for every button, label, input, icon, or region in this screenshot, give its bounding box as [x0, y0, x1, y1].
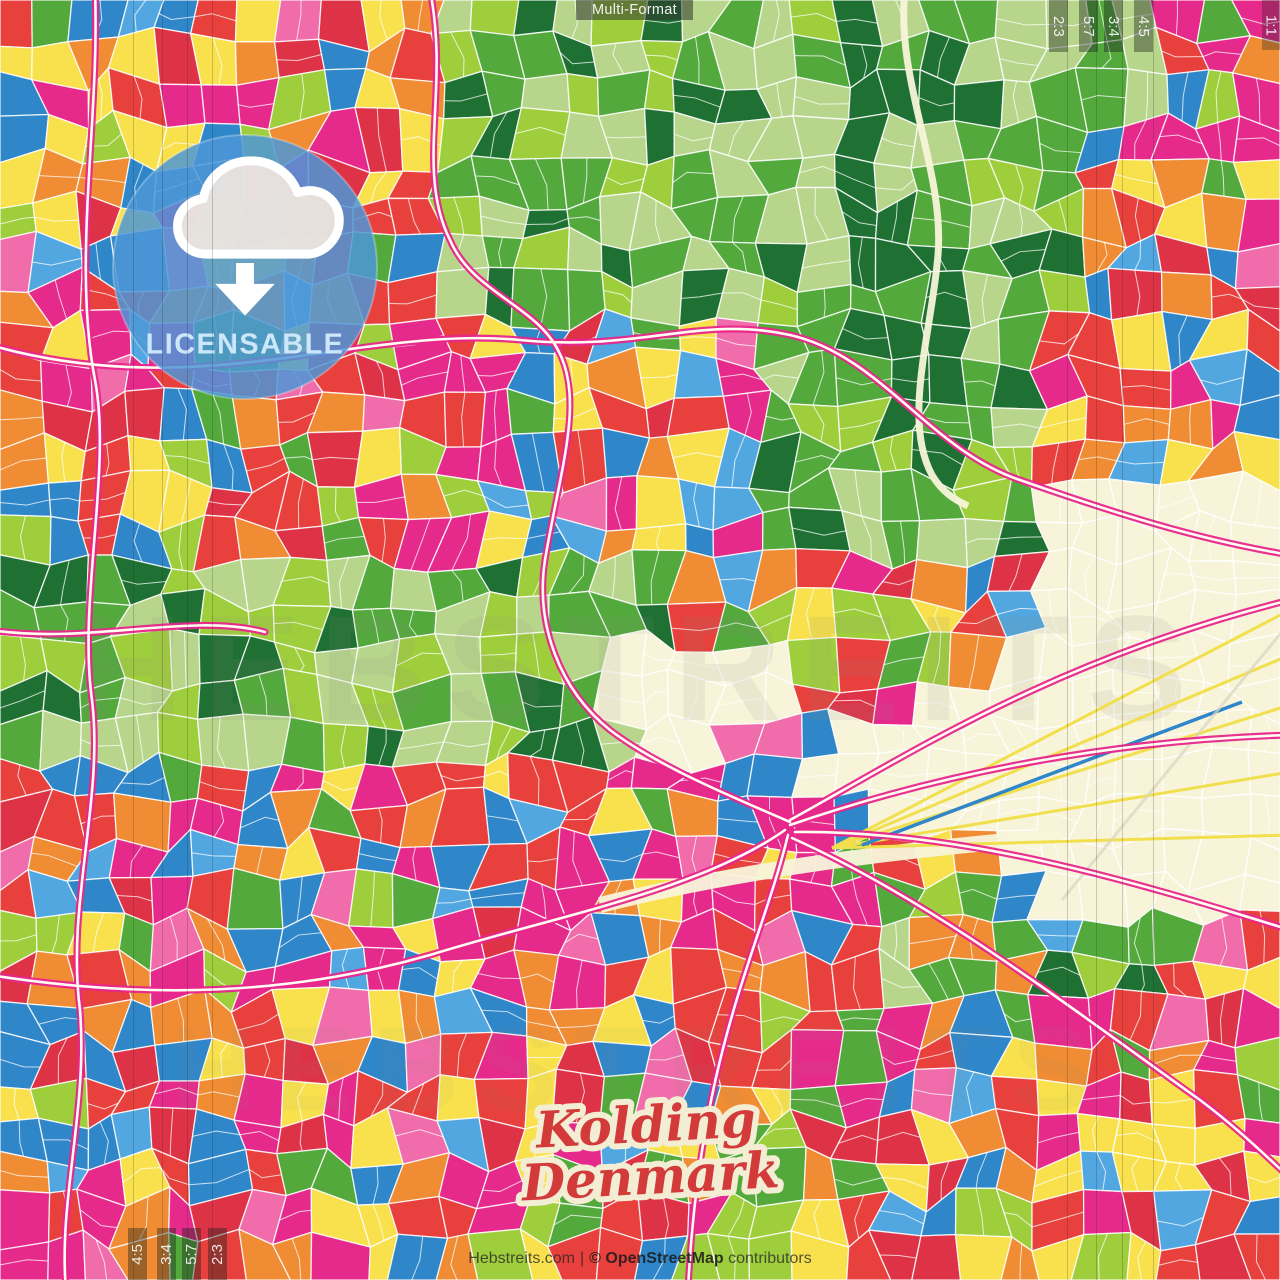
footer-attribution: Hebstreits.com|© OpenStreetMap contribut…: [0, 1250, 1280, 1268]
footer-separator: |: [580, 1250, 584, 1267]
svg-text:HEBSTREITS: HEBSTREITS: [75, 584, 1205, 752]
badge-label: LICENSABLE: [146, 328, 345, 360]
ratio-label: 5:7: [1081, 16, 1096, 37]
map-poster-preview: { "header": { "format_label": "Multi-For…: [0, 0, 1280, 1280]
multi-format-label: Multi-Format: [592, 2, 677, 18]
map-title: Kolding Denmark: [0, 1078, 1280, 1248]
crop-mark-3-4: 3:4: [1104, 0, 1123, 52]
ratio-label: 2:3: [1051, 16, 1066, 37]
ratio-label: 3:4: [1106, 16, 1121, 37]
footer-site: Hebstreits.com: [468, 1250, 575, 1267]
ratio-label: 1:1: [1264, 15, 1279, 36]
footer-contributors: contributors: [728, 1250, 812, 1267]
crop-mark-5-7: 5:7: [1079, 0, 1098, 52]
crop-mark-2-3: 2:3: [1049, 0, 1068, 52]
title-country: Denmark: [518, 1140, 781, 1213]
multi-format-chip: Multi-Format: [576, 0, 693, 20]
crop-mark-1-1: 1:1: [1262, 0, 1280, 50]
footer-osm: © OpenStreetMap: [589, 1250, 723, 1267]
licensable-badge: LICENSABLE: [111, 133, 379, 401]
ratio-label: 4:5: [1136, 16, 1151, 37]
crop-mark-4-5: 4:5: [1134, 0, 1153, 52]
